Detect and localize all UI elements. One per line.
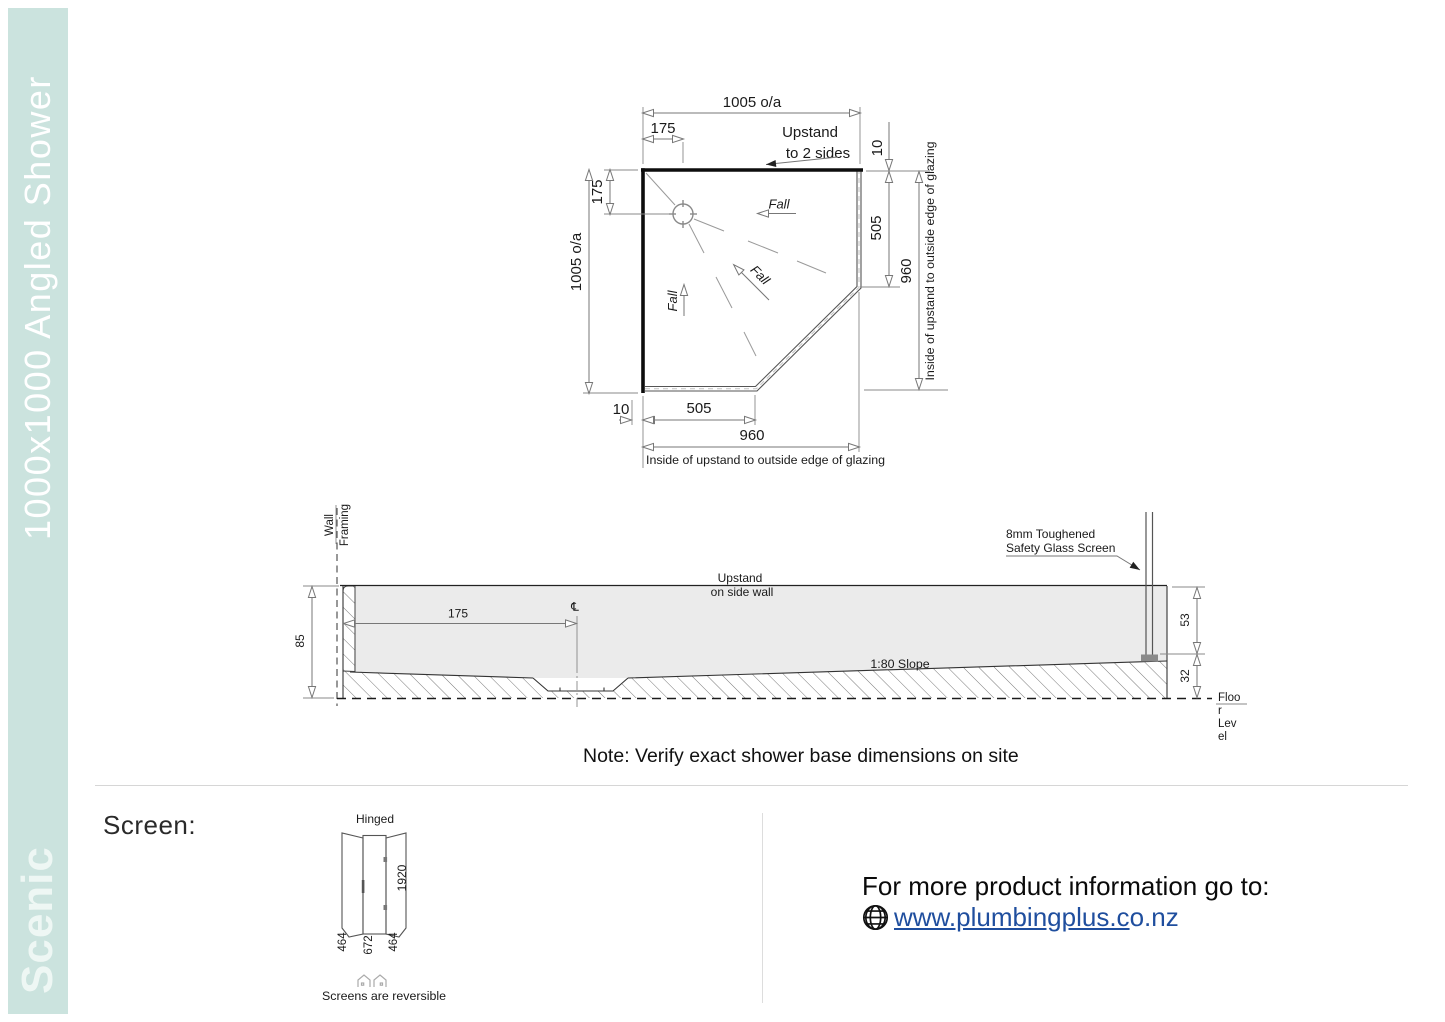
tray-body [354,586,1167,678]
section-dim-85: 85 [293,586,339,698]
caption-right-glazing: Inside of upstand to outside edge of gla… [923,141,937,380]
dim-53-label: 53 [1178,613,1192,627]
glass-label-line2: Safety Glass Screen [1006,541,1115,555]
wall-framing-label1: Wall [324,514,336,536]
upstand-side-wall-label2: on side wall [711,585,774,599]
fall-label-top: Fall [769,197,791,212]
reversible-icon-right [374,975,386,987]
fall-crease-lines [646,173,826,356]
fall-label-diagonal: Fall [747,262,773,288]
upstand-label-line1: Upstand [782,124,838,141]
plumbingplus-link[interactable]: www.plumbingplus.co.nz [894,902,1179,933]
centreline-symbol: ℄ [570,600,579,614]
dim-464-right-label: 464 [388,932,400,952]
footer-link-row: www.plumbingplus.co.nz [862,902,1179,933]
screen-elevation: Hinged 1920 464 672 464 Screens are reve… [322,812,446,1003]
screen-door-panel [363,836,386,935]
hinged-label: Hinged [356,812,394,826]
dim-1005-left: 1005 o/a [568,232,585,291]
dim-464-left-label: 464 [337,932,349,952]
tray-upstand-section [343,586,355,672]
plan-dims-bottom: 10 505 960 Inside of upstand to outside … [613,292,885,468]
dim-175-section: 175 [448,607,468,621]
door-handle [362,880,365,893]
globe-icon [862,904,889,931]
dim-960-right: 960 [898,258,915,283]
door-hinge-bottom [384,905,388,910]
dim-10-top-right: 10 [869,140,886,157]
dim-672-label: 672 [363,935,375,954]
drain-recess [533,678,628,691]
glazing-outline-outer [645,171,861,391]
drain-waste [669,200,697,228]
floor-level-label: Floo r Lev el [1216,692,1247,743]
section-view: Wall Framing 8mm Toughened Safety Glass … [293,504,1247,743]
glass-label-line1: 8mm Toughened [1006,527,1095,541]
upstand-side-wall-label1: Upstand [718,571,763,585]
screen-section-heading: Screen: [103,810,196,841]
glass-leader [1006,556,1140,570]
plumbingplus-link-tail: o.nz [1130,902,1179,932]
plan-dims-right: 10 505 960 Inside of upstand to outside … [860,122,948,390]
upstand-annotation: Upstand to 2 sides [766,124,850,165]
fall-label-left: Fall [665,289,680,311]
dim-10-bottom: 10 [613,401,630,418]
plumbingplus-link-underlined: www.plumbingplus.c [894,902,1130,932]
floor-level-line1: Floo [1218,692,1240,704]
wall-framing-label2: Framing [339,504,351,546]
floor-level-line2: r [1218,705,1222,717]
dim-1005-top: 1005 o/a [723,94,782,111]
dim-85-label: 85 [293,634,307,648]
slope-label: 1:80 Slope [870,657,929,671]
dim-1920-label: 1920 [395,864,409,891]
plan-dims-left: 175 1005 o/a [568,170,671,393]
glazing-centreline [645,171,859,389]
caption-bottom-glazing: Inside of upstand to outside edge of gla… [646,453,885,467]
floor-level-line3: Lev [1218,718,1237,730]
glazing-outline-inner [645,171,857,387]
footer-info-text: For more product information go to: [862,871,1270,902]
door-hinge-top [384,857,388,862]
vertical-divider [762,813,763,1003]
reversible-icon-left [358,975,370,987]
floor-level-line4: el [1218,731,1227,743]
reversible-label: Screens are reversible [322,989,446,1003]
dim-505-right: 505 [868,215,885,240]
screen-left-panel [342,833,363,937]
site-note: Note: Verify exact shower base dimension… [583,745,1019,768]
dim-505-bottom: 505 [686,400,711,417]
dim-175-left: 175 [589,179,606,204]
dim-32-label: 32 [1178,669,1192,683]
dim-960-bottom: 960 [739,427,764,444]
plan-view: Fall Fall Fall 1005 o/a 175 Upstand to 2… [568,94,948,468]
horizontal-divider [95,785,1408,786]
technical-drawing: Fall Fall Fall 1005 o/a 175 Upstand to 2… [0,0,1445,1022]
dim-175-top: 175 [650,120,675,137]
